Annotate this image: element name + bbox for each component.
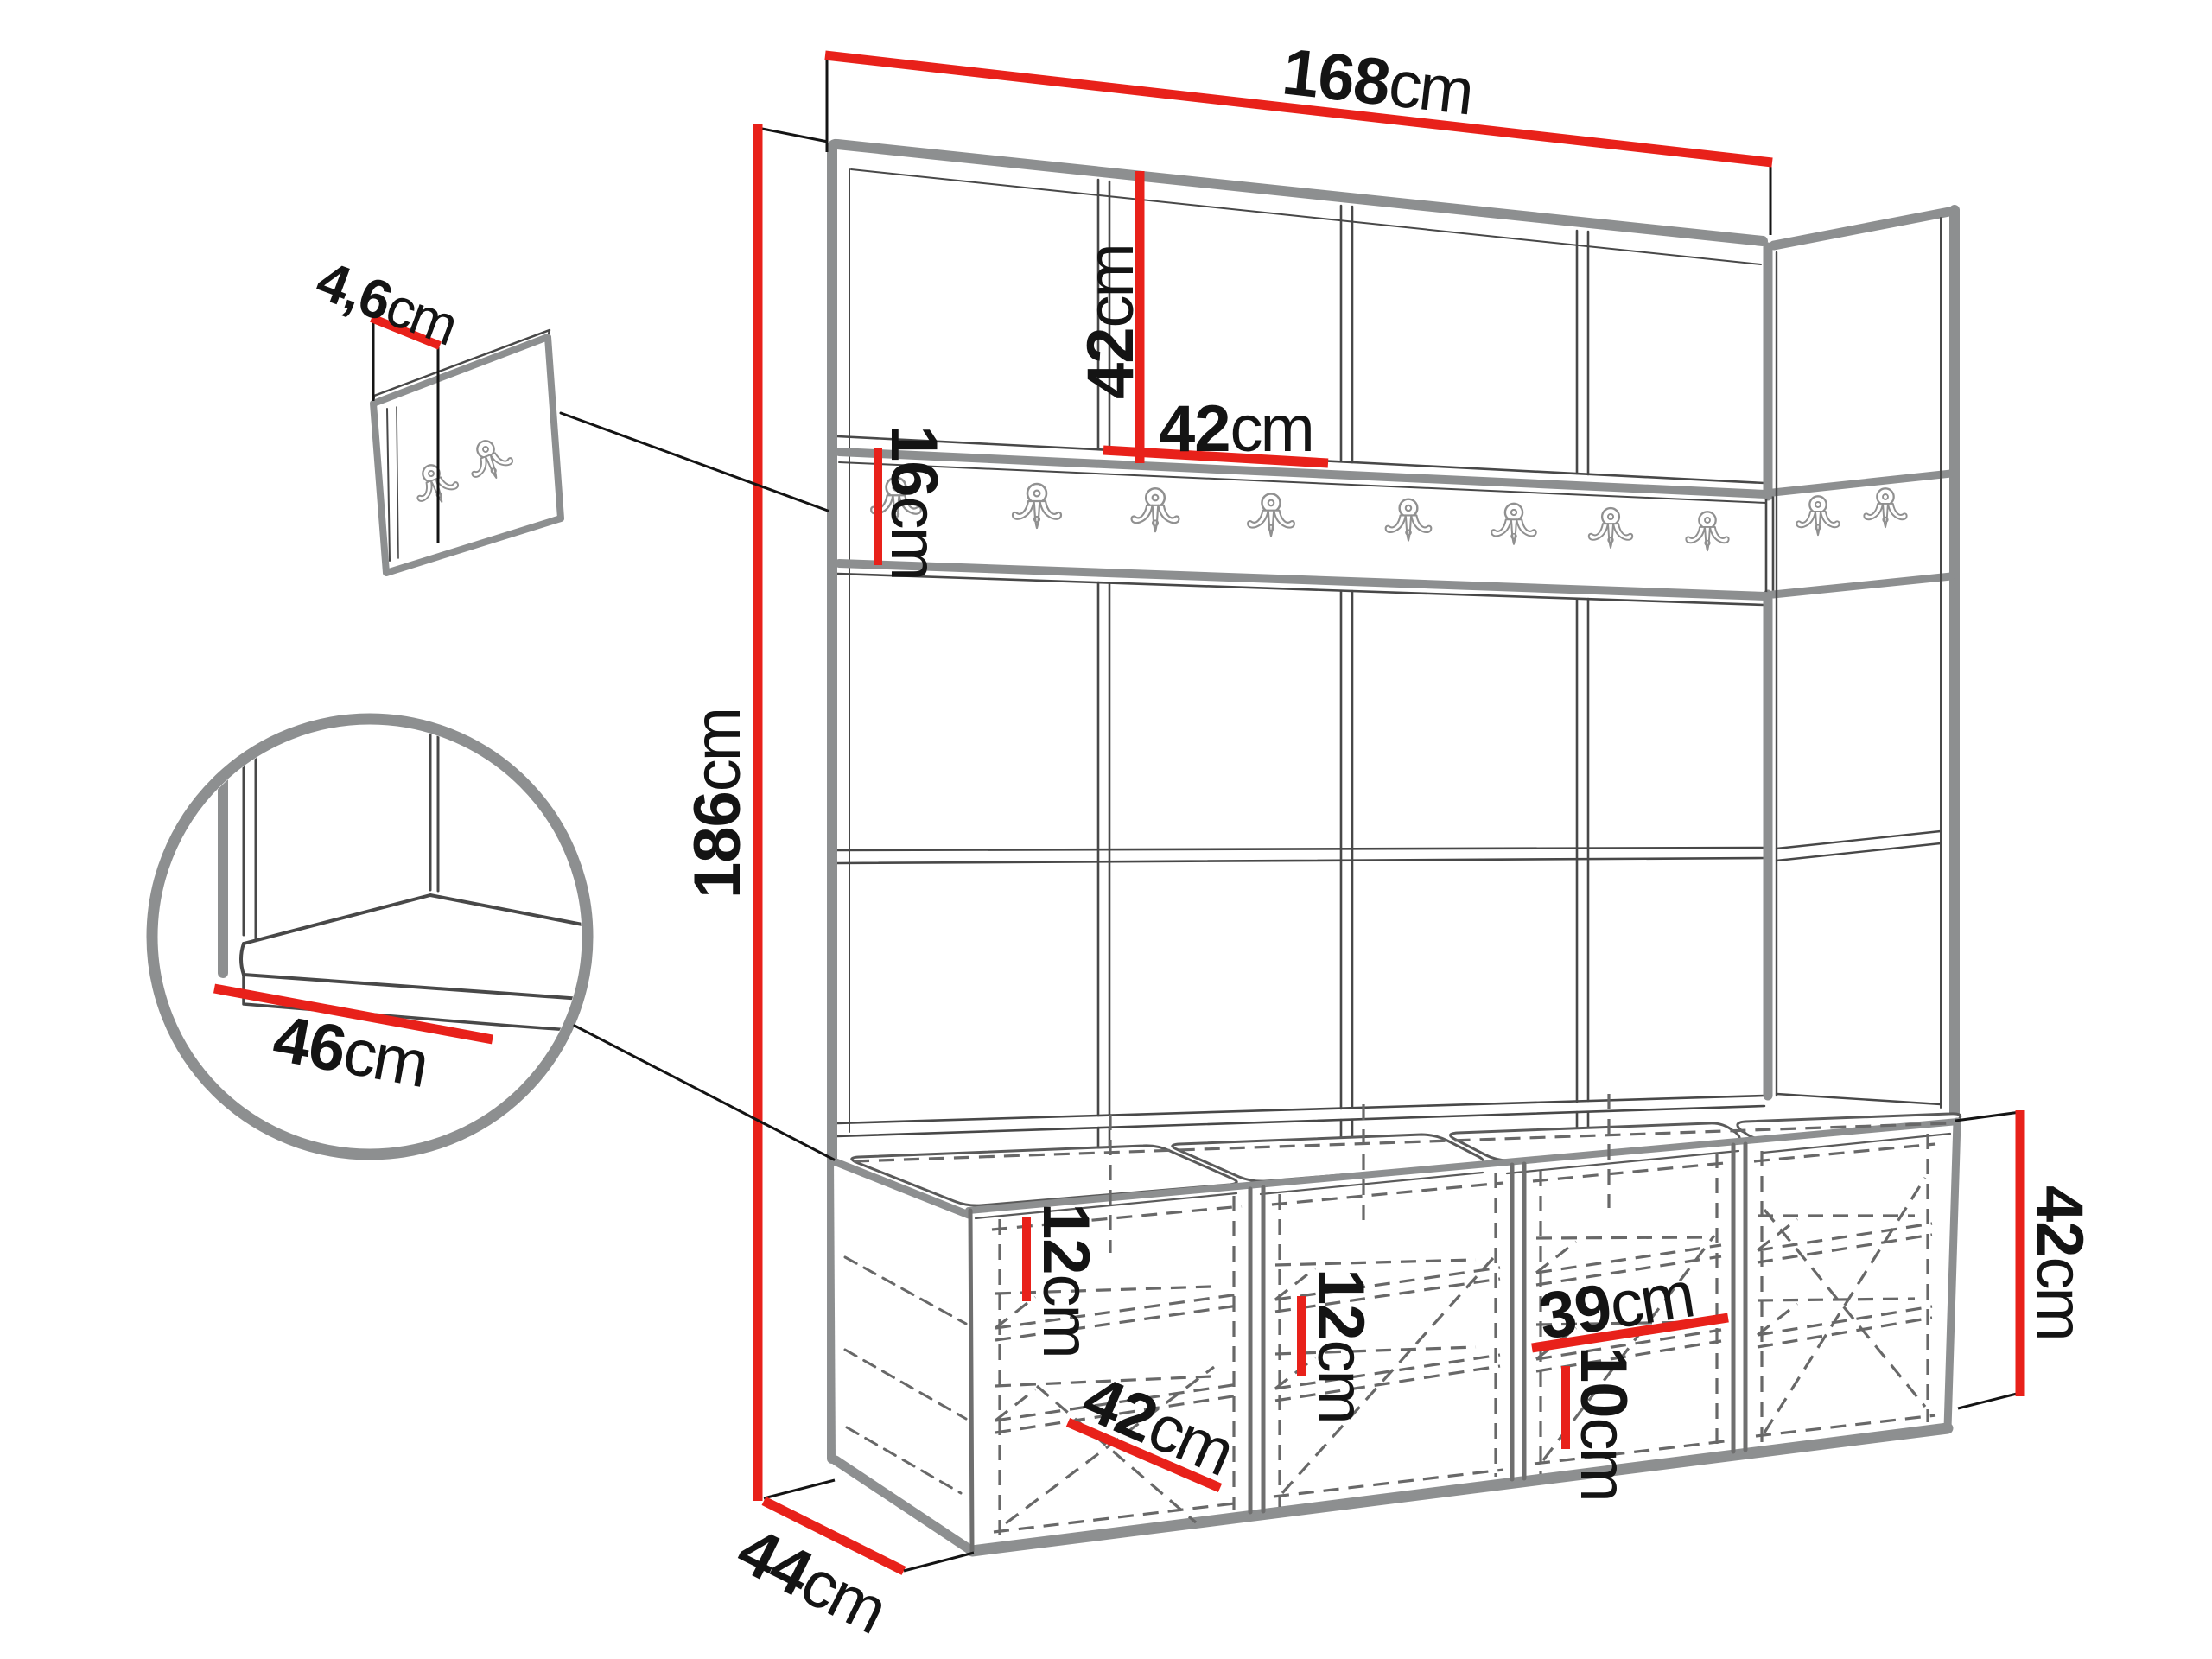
svg-text:10cm: 10cm [1567, 1346, 1640, 1500]
svg-text:16cm: 16cm [877, 425, 950, 579]
svg-text:42cm: 42cm [1159, 392, 1313, 466]
svg-text:42cm: 42cm [2023, 1185, 2096, 1339]
svg-text:12cm: 12cm [1029, 1203, 1103, 1357]
svg-text:186cm: 186cm [681, 709, 754, 899]
svg-text:42cm: 42cm [1074, 245, 1147, 399]
svg-text:12cm: 12cm [1304, 1268, 1377, 1422]
